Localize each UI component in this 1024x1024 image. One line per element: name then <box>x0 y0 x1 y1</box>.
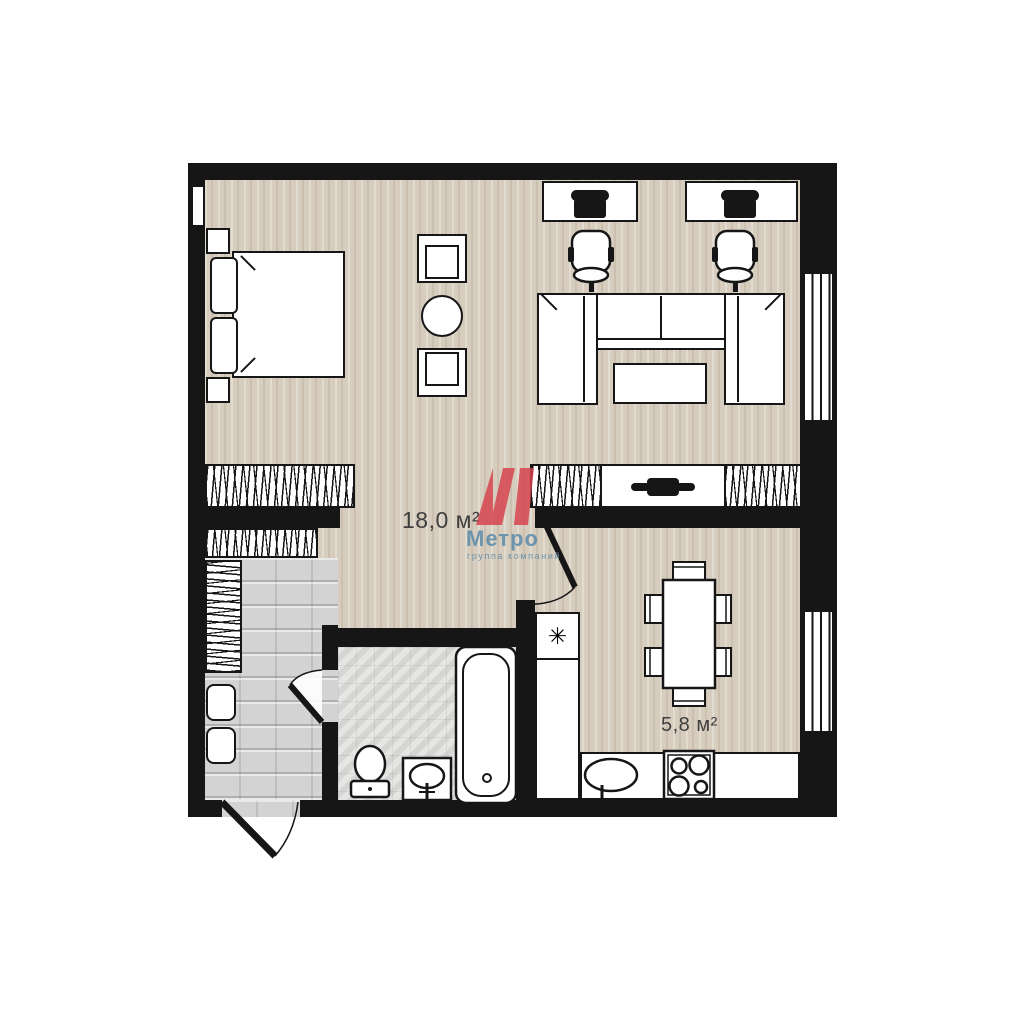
nightstand <box>206 228 230 254</box>
office-chair <box>568 229 614 293</box>
door-bathroom <box>268 652 338 730</box>
wall-bath-left-lower <box>322 722 338 800</box>
armchair <box>417 234 467 283</box>
room-label-kitchen: 5,8 м² <box>661 714 718 737</box>
kitchen-sink <box>582 755 642 800</box>
logo-name: Метро <box>466 526 539 552</box>
fridge-freezer-icon: ✳ <box>548 623 567 650</box>
bed-pillow <box>210 257 238 314</box>
wall-top <box>188 163 837 180</box>
window-kitchen <box>803 610 834 733</box>
window-living <box>803 272 834 422</box>
kitchen-counter-left <box>535 658 580 800</box>
logo-mark-icon <box>470 465 550 527</box>
coffee-table <box>613 363 707 404</box>
armchair <box>417 348 467 397</box>
wall-niche <box>193 187 203 225</box>
bed-pillow <box>210 317 238 374</box>
wardrobe <box>205 560 242 673</box>
tv-icon <box>647 478 679 496</box>
round-side-table <box>421 295 463 337</box>
floor-plan-canvas: ✳ <box>0 0 1024 1024</box>
wall-kitchen-vertical <box>516 600 535 800</box>
wall-bath-top <box>338 628 518 647</box>
wardrobe <box>205 528 318 558</box>
tv-stand <box>530 464 800 508</box>
pouf <box>206 727 236 764</box>
fridge: ✳ <box>535 612 580 660</box>
toilet <box>348 744 392 800</box>
bathtub <box>455 646 517 804</box>
bathroom-sink <box>402 757 452 801</box>
door-entrance <box>212 796 322 868</box>
stove <box>663 750 715 800</box>
bed <box>232 251 345 378</box>
monitor-icon <box>574 199 606 218</box>
wall-left <box>188 163 205 817</box>
nightstand <box>206 377 230 403</box>
monitor-icon <box>724 199 756 218</box>
dining-table-set <box>640 556 736 712</box>
office-chair <box>712 229 758 293</box>
pouf <box>206 684 236 721</box>
logo-tagline: группа компаний <box>467 551 561 561</box>
wall-living-hall <box>205 508 340 528</box>
wardrobe <box>205 464 355 508</box>
